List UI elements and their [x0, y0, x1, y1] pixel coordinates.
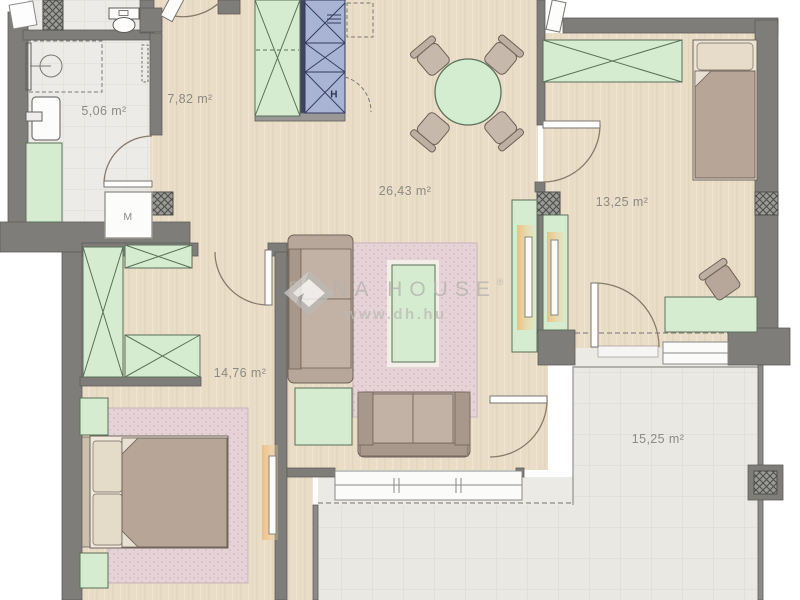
wardrobe	[83, 247, 123, 377]
desk	[665, 297, 757, 332]
bathroom-shelf	[26, 143, 62, 222]
door-leaf-terrace	[490, 396, 547, 403]
nightstand	[80, 398, 108, 435]
area-label-terrace: 15,25 m²	[632, 432, 685, 446]
washbasin-tap	[26, 112, 42, 121]
radiator-bedroom-left	[269, 456, 276, 534]
door-leaf-bathroom	[104, 181, 152, 187]
pillar	[755, 192, 778, 215]
radiator-cabinet	[512, 200, 537, 352]
nightstand	[80, 553, 108, 588]
door-leaf-bedroom-right	[543, 121, 600, 128]
window-outer-corner	[9, 1, 37, 29]
pillow	[93, 441, 122, 492]
fridge-label: H	[330, 90, 338, 101]
double-bed	[82, 436, 228, 548]
pillar	[152, 192, 173, 215]
pillar	[43, 0, 63, 30]
balcony-door-threshold	[598, 346, 658, 357]
pillow	[697, 43, 753, 70]
side-table	[295, 388, 352, 445]
area-label-bathroom: 5,06 m²	[81, 104, 126, 118]
single-bed	[693, 40, 757, 180]
wardrobe	[543, 40, 682, 82]
area-label-hall: 7,82 m²	[167, 92, 212, 106]
tall-cabinet-green	[255, 0, 300, 116]
pillar	[537, 192, 560, 215]
pillar-terrace	[754, 471, 777, 494]
radiator-cabinet	[543, 215, 568, 330]
floorplan: 5,06 m² 7,82 m² 26,43 m² 13,25 m² 14,76 …	[0, 0, 800, 600]
duvet	[695, 71, 755, 178]
coffee-table	[392, 265, 435, 362]
pillow	[93, 494, 122, 545]
area-label-bedroom-left: 14,76 m²	[214, 366, 267, 380]
area-label-bedroom-right: 13,25 m²	[596, 195, 649, 209]
door-leaf-balcony	[591, 283, 598, 347]
washing-machine-label: M	[123, 211, 132, 223]
wardrobe	[125, 335, 200, 377]
kitchen-unit-blue	[305, 0, 345, 113]
sofa-bottom	[358, 392, 470, 457]
dining-table	[435, 59, 501, 125]
door-leaf-bedroom-left	[265, 250, 272, 305]
window-living-room	[335, 471, 522, 500]
area-label-living: 26,43 m²	[379, 184, 432, 198]
living-furniture	[288, 235, 477, 457]
duvet	[122, 438, 227, 547]
floorplan-canvas	[0, 0, 800, 600]
sofa-left	[288, 235, 353, 383]
wardrobe	[125, 245, 192, 268]
